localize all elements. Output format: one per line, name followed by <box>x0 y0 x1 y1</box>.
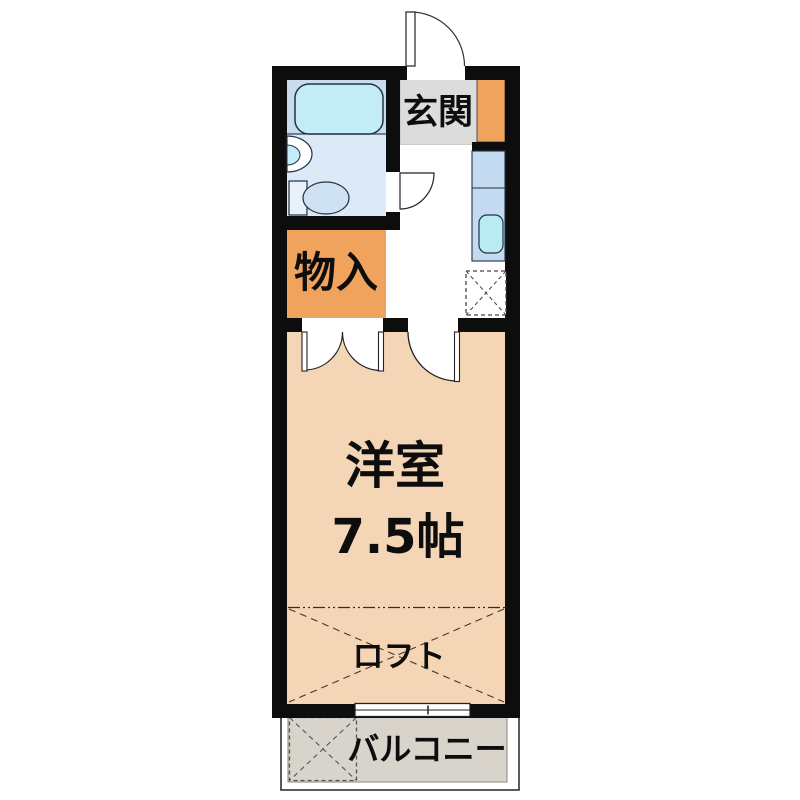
closet-door-opening <box>302 318 383 332</box>
bathroom-door-opening <box>386 172 400 212</box>
balcony-window <box>355 704 470 717</box>
bathtub <box>295 84 383 134</box>
shoe-cabinet <box>477 78 505 142</box>
wall-shoebox-stub <box>472 142 520 151</box>
balcony-label: バルコニー <box>347 730 506 768</box>
entrance-label: 玄関 <box>403 93 473 133</box>
closet-label: 物入 <box>294 248 378 297</box>
wall-right <box>505 66 520 714</box>
room-name-label: 洋室 <box>345 437 445 495</box>
wall-bathroom-bottom <box>272 216 400 230</box>
floor-plan-drawing: 玄関 物入 洋室 7.5帖 ロフト バルコニー <box>0 0 800 800</box>
loft-label: ロフト <box>353 639 446 675</box>
entrance-door-opening <box>407 66 465 80</box>
wall-left <box>272 66 287 714</box>
kitchen-sink <box>479 215 503 253</box>
room-door-opening <box>408 318 458 332</box>
refrigerator-space-dashed-square <box>466 271 506 315</box>
floor-plan: 玄関 物入 洋室 7.5帖 ロフト バルコニー <box>0 0 800 800</box>
room-size-label: 7.5帖 <box>331 509 464 565</box>
toilet <box>289 181 349 215</box>
